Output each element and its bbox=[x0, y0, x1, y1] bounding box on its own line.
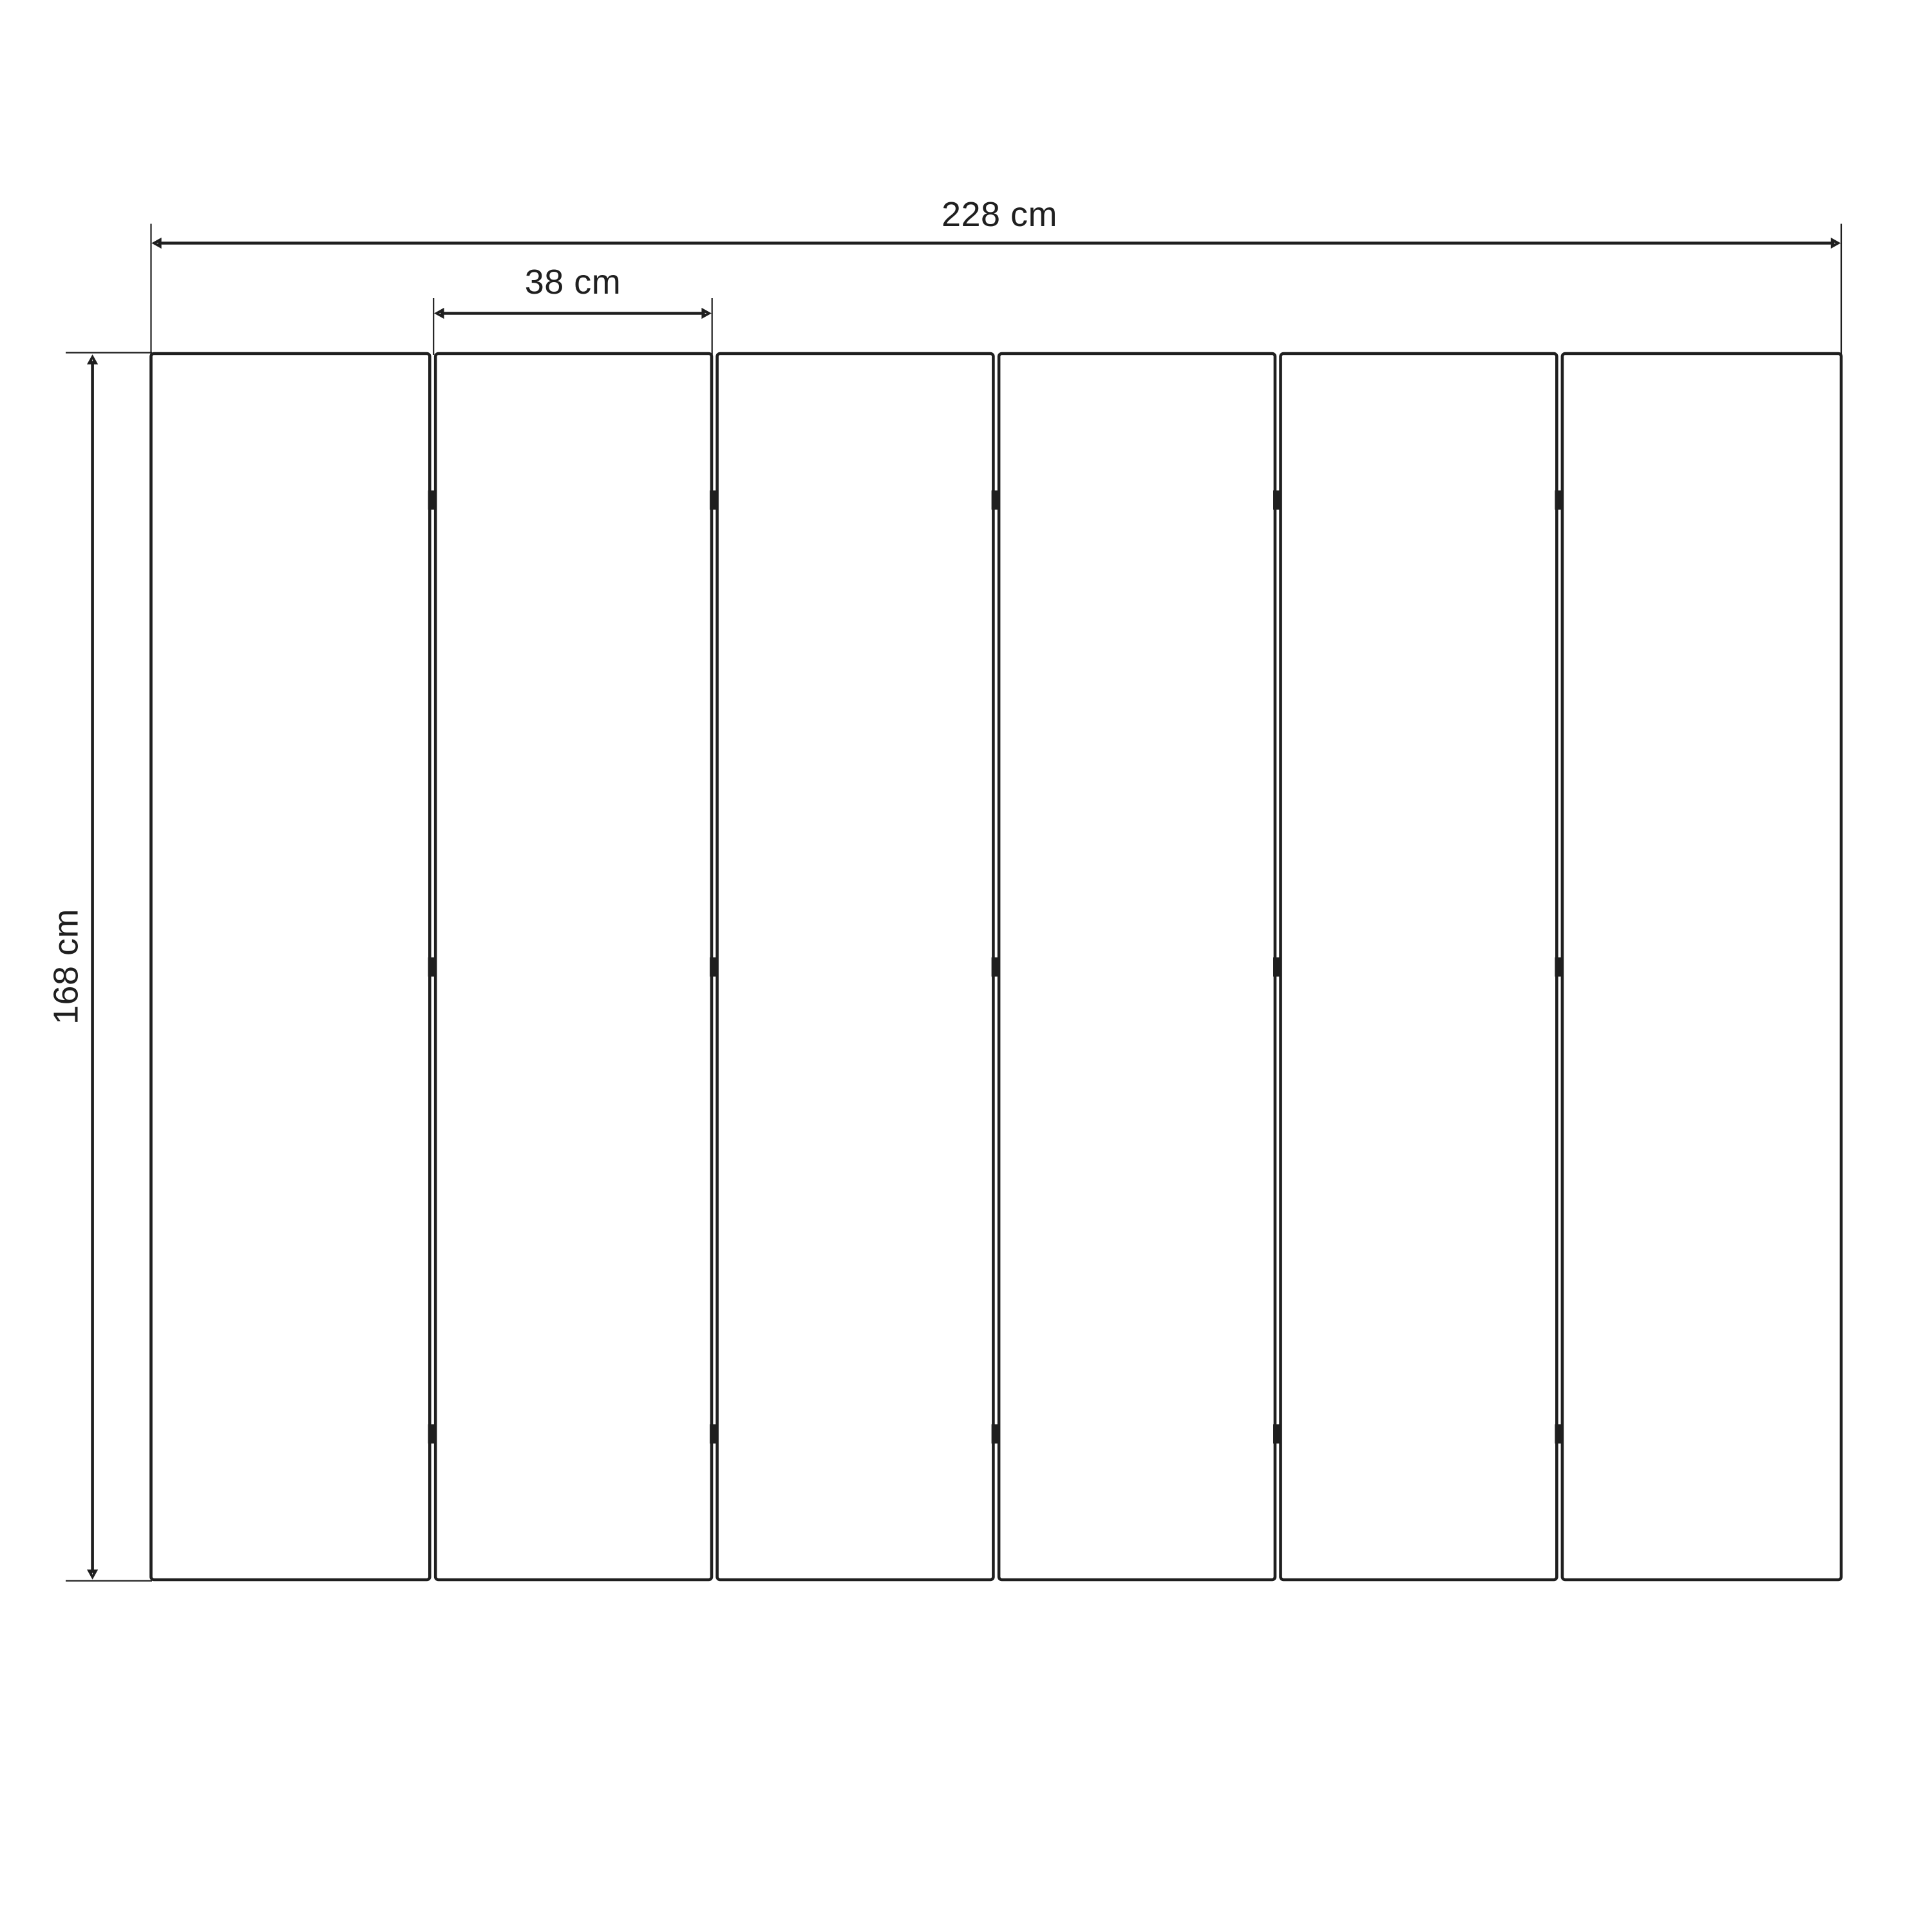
svg-text:38 cm: 38 cm bbox=[525, 263, 621, 301]
svg-text:168 cm: 168 cm bbox=[47, 909, 86, 1025]
svg-text:228 cm: 228 cm bbox=[942, 195, 1057, 234]
